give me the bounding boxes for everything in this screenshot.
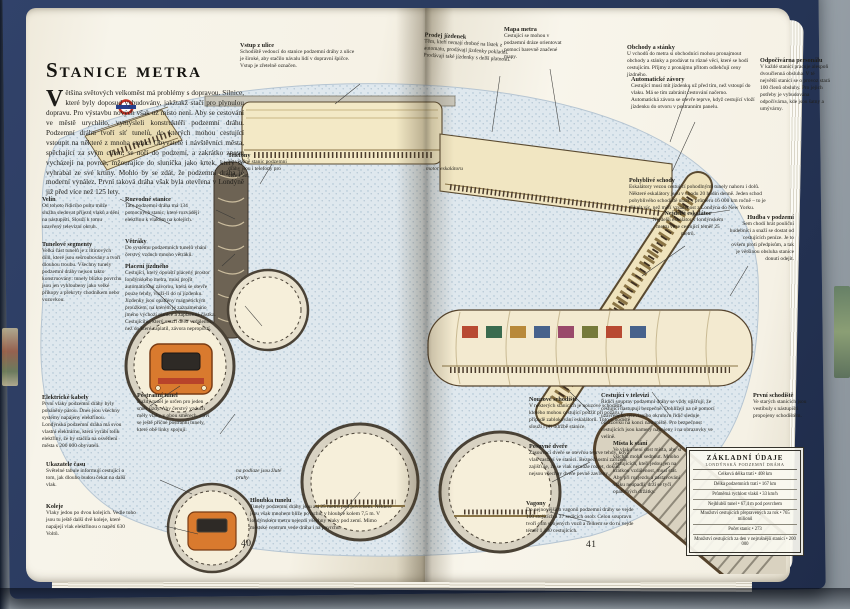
annotation-koleje: Koleje Vlaky jedou po dvou kolejích. Ved… <box>46 503 138 538</box>
train-tunnel-lower <box>168 484 256 572</box>
annotation-body: Vlaky jedou po dvou kolejích. Vedle toho… <box>46 510 138 538</box>
annotation-heading: Hudba v podzemí <box>728 214 794 221</box>
annotation-automaticke-zavory: Automatické závory Cestující musí mít jí… <box>631 76 755 111</box>
annotation-body: Od tohoto řídicího pultu může služba sle… <box>42 203 120 231</box>
annotation-heading: Odpočívárna personálu <box>760 57 832 64</box>
facts-row: Množství cestujících přepravených za rok… <box>693 510 797 525</box>
annotation-vetraky: Větráky Do systému podzemních tunelů vhá… <box>125 238 213 259</box>
annotation-heading: Telefony <box>228 152 298 159</box>
annotation-heading: Mapa metra <box>504 26 562 33</box>
annotation-body: Ve většině stanic podzemní dráhy jsou i … <box>228 159 298 180</box>
annotation-vagony: Vagony Do nejnovějších vagonů podzemní d… <box>526 500 638 535</box>
annotation-body: Každý tunel je určen pro jeden směr jízd… <box>137 399 215 434</box>
annotation-telefony: Telefony Ve většině stanic podzemní dráh… <box>228 152 298 180</box>
annotation-nejdelsi-eskalator: Nejdelší eskalátor Nejdelší eskalátor v … <box>650 210 726 238</box>
annotation-body: Do systému podzemních tunelů vhání čerst… <box>125 245 213 259</box>
annotation-vstup-z-ulice: Vstup z ulice Schodiště vedoucí do stani… <box>240 42 355 70</box>
annotation-mapa-metra: Mapa metra Cestující se mohou v podzemní… <box>504 26 562 61</box>
annotation-heading: Elektrické kabely <box>42 394 130 401</box>
page-title: Stanice metra <box>46 58 244 83</box>
page-number-left: 40 <box>241 539 252 549</box>
page-number-right: 41 <box>586 540 597 550</box>
annotation-heading: Koleje <box>46 503 138 510</box>
caption-motor-eskalatoru: motor eskalátoru <box>426 166 478 173</box>
annotation-body: Schodiště vedoucí do stanice podzemní dr… <box>240 49 355 70</box>
annotation-velin: Velín Od tohoto řídicího pultu může služ… <box>42 196 120 231</box>
caption-zlute-pruhy: na podlaze jsou žluté pruhy <box>236 468 294 482</box>
intro-paragraph: Většina světových velkoměst má problémy … <box>46 89 244 198</box>
annotation-body: Velká část tunelů je z litinových dílů, … <box>42 248 122 303</box>
annotation-body: Ve starých stanicích jsou vestibuly s ná… <box>753 399 819 420</box>
facts-row: Celková délka tratí • 408 km <box>693 471 797 481</box>
annotation-odpocivarna-personalu: Odpočívárna personálu V každé stanici pr… <box>760 57 832 113</box>
concourse-tunnel <box>428 310 752 386</box>
annotation-rozvodne-stanice: Rozvodné stanice Tato podzemní dráha má … <box>125 196 213 224</box>
annotation-body: Eskalátory vezou cestující pohodlnými tu… <box>629 184 777 212</box>
annotation-heading: Rozvodné stanice <box>125 196 213 203</box>
annotation-body: První vlaky podzemní dráhy byly poháněny… <box>42 401 130 449</box>
annotation-pohyblive-schody: Pohyblivé schody Eskalátory vezou cestuj… <box>629 177 777 212</box>
annotation-heading: Automatické závory <box>631 76 755 83</box>
annotation-tunelove-segmenty: Tunelové segmenty Velká část tunelů je z… <box>42 241 122 304</box>
annotation-placeni-jizdneho: Placení jízdného Cestující, který opoušt… <box>125 263 217 333</box>
annotation-body: Cestující, který opouští placený prostor… <box>125 270 217 332</box>
title-block: Stanice metra Většina světových velkoměs… <box>46 58 244 198</box>
annotation-heading: Místa k stání <box>613 440 683 447</box>
annotation-body: Ve vlaku není dost místa, aby si všichni… <box>613 447 683 495</box>
page-sliver-right <box>834 286 850 378</box>
annotation-heading: Postranní tunel <box>137 392 215 399</box>
annotation-postranni-tunel: Postranní tunel Každý tunel je určen pro… <box>137 392 215 434</box>
train-front <box>150 344 212 394</box>
annotation-body: Tato podzemní dráha má 134 pomocných sta… <box>125 203 213 224</box>
facts-subtitle: LONDÝNSKÁ PODZEMNÍ DRÁHA <box>693 462 797 470</box>
facts-row: Délka podzemních tratí • 167 km <box>693 480 797 490</box>
annotation-heading: Nejdelší eskalátor <box>650 210 726 217</box>
facts-title: ZÁKLADNÍ ÚDAJE <box>693 454 797 462</box>
annotation-body: Cestující se mohou v podzemní dráze orie… <box>504 33 562 61</box>
annotation-body: U vchodů do metra si obchodníci mohou pr… <box>627 51 755 79</box>
facts-row: Množství cestujících za den v nejrušnějš… <box>693 535 797 549</box>
annotation-body: Cestující musí mít jízdenku už před tím,… <box>631 83 755 111</box>
annotation-obchody-a-stanky: Obchody a stánky U vchodů do metra si ob… <box>627 44 755 79</box>
annotation-body: Světelné tabule informují cestující o to… <box>46 468 134 489</box>
annotation-heading: Placení jízdného <box>125 263 217 270</box>
annotation-elektricke-kabely: Elektrické kabely První vlaky podzemní d… <box>42 394 130 450</box>
annotation-heading: Vstup z ulice <box>240 42 355 49</box>
annotation-prvni-schodiste: První schodiště Ve starých stanicích jso… <box>753 392 819 420</box>
annotation-heading: První schodiště <box>753 392 819 399</box>
annotation-body: Nejdelší eskalátor v londýnském metru ve… <box>650 217 726 238</box>
annotation-ukazatele-casu: Ukazatele času Světelné tabule informují… <box>46 461 134 489</box>
facts-row: Průměrná rychlost vlaků • 33 km/h <box>693 490 797 500</box>
annotation-body: V každé stanici pracuje alespoň dvoučlen… <box>760 64 832 112</box>
annotation-hudba-v-podzemi: Hudba v podzemí Sem chodí hrát pouliční … <box>728 214 794 263</box>
facts-table-frame: ZÁKLADNÍ ÚDAJE LONDÝNSKÁ PODZEMNÍ DRÁHA … <box>689 450 801 553</box>
facts-table: ZÁKLADNÍ ÚDAJE LONDÝNSKÁ PODZEMNÍ DRÁHA … <box>686 447 804 556</box>
page-sliver-left <box>2 328 18 386</box>
book-drop-shadow <box>0 588 850 609</box>
annotation-hloubka-tunelu: Hloubka tunelu Tunely podzemní dráhy jso… <box>250 497 392 532</box>
annotation-body: Do nejnovějších vagonů podzemní dráhy se… <box>526 507 638 535</box>
annotation-body: Tunely podzemní dráhy jsou asi 25 metrů … <box>250 504 392 532</box>
annotation-mista-k-stani: Místa k stání Ve vlaku není dost místa, … <box>613 440 683 496</box>
facts-row: Počet stanic • 273 <box>693 525 797 535</box>
annotation-cestujici-v-televizi: Cestující v televizi Řidiči souprav podz… <box>601 392 717 441</box>
facts-row: Nejhlubší tunel • 67,4 m pod povrchem <box>693 500 797 510</box>
annotation-body: Řidiči souprav podzemní dráhy se vždy uj… <box>601 399 717 440</box>
annotation-body: Sem chodí hrát pouliční hudebníci a snaž… <box>728 221 794 262</box>
